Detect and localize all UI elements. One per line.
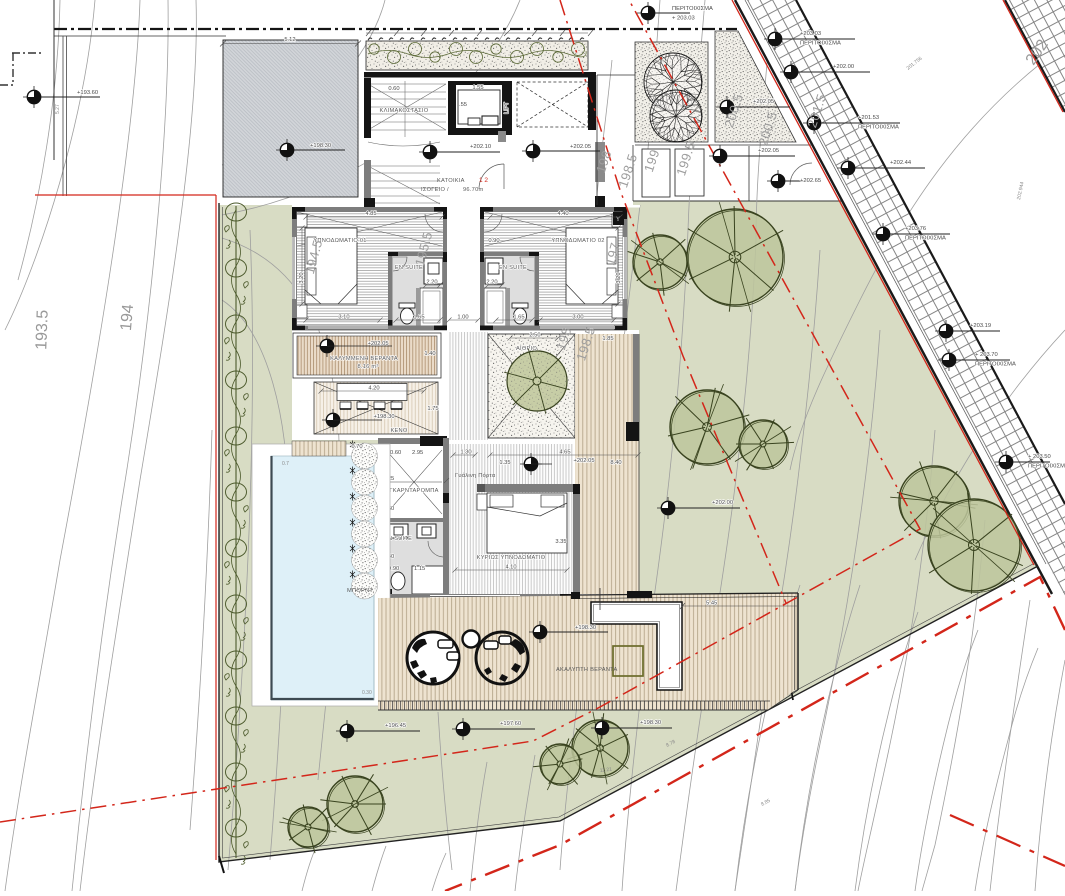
svg-text:ΚΛΙΜΑΚΟΣΤΑΣΙΟ: ΚΛΙΜΑΚΟΣΤΑΣΙΟ bbox=[380, 108, 429, 114]
svg-text:ΙΣΟΓΕΙΟ /: ΙΣΟΓΕΙΟ / bbox=[421, 187, 449, 193]
svg-text:+193.60: +193.60 bbox=[77, 90, 98, 96]
svg-text:ΑΙΘΡΙΟ: ΑΙΘΡΙΟ bbox=[516, 346, 537, 352]
svg-text:ΠΕΡΙΤΟΙΧΙΣΜΑ: ΠΕΡΙΤΟΙΧΙΣΜΑ bbox=[672, 6, 713, 12]
svg-text:ΓΚΑΡΝΤΑΡΟΜΠΑ: ΓΚΑΡΝΤΑΡΟΜΠΑ bbox=[389, 488, 438, 494]
svg-text:5.45: 5.45 bbox=[706, 601, 717, 607]
svg-text:+ 203.50: + 203.50 bbox=[1028, 454, 1051, 460]
svg-text:ΠΕΡΙΤΟΙΧΙΣΜΑ: ΠΕΡΙΤΟΙΧΙΣΜΑ bbox=[1028, 464, 1065, 470]
svg-text:2.95: 2.95 bbox=[412, 450, 423, 456]
svg-text:+197.60: +197.60 bbox=[500, 721, 521, 727]
svg-text:1.30: 1.30 bbox=[460, 450, 471, 456]
svg-text:1.35: 1.35 bbox=[499, 460, 510, 466]
svg-text:1.65: 1.65 bbox=[513, 315, 524, 321]
svg-text:+202.05: +202.05 bbox=[758, 148, 779, 154]
svg-text:3.10: 3.10 bbox=[338, 315, 349, 321]
svg-text:LIFT: LIFT bbox=[504, 102, 510, 114]
svg-text:1.40: 1.40 bbox=[424, 351, 435, 357]
svg-text:2.50: 2.50 bbox=[529, 333, 540, 339]
svg-text:ΜΠΟΡΝΤ.: ΜΠΟΡΝΤ. bbox=[347, 588, 375, 594]
svg-text:ΚΑΤΟΙΚΙΑ: ΚΑΤΟΙΚΙΑ bbox=[437, 178, 465, 184]
svg-text:4.40: 4.40 bbox=[557, 211, 568, 217]
svg-text:3.20: 3.20 bbox=[616, 272, 622, 283]
svg-text:+196.45: +196.45 bbox=[385, 723, 406, 729]
svg-text:1.65: 1.65 bbox=[413, 315, 424, 321]
svg-text:ΑΚΑΛΥΠΤΗ ΒΕΡΑΝΤΑ: ΑΚΑΛΥΠΤΗ ΒΕΡΑΝΤΑ bbox=[556, 667, 618, 673]
svg-text:1 2: 1 2 bbox=[479, 177, 488, 184]
svg-text:+198.30: +198.30 bbox=[373, 414, 394, 420]
svg-text:4.20: 4.20 bbox=[368, 386, 379, 392]
svg-text:.55: .55 bbox=[459, 102, 467, 108]
svg-text:ΚΑΛΥΜΜΕΝΗ ΒΕΡΑΝΤΑ: ΚΑΛΥΜΜΕΝΗ ΒΕΡΑΝΤΑ bbox=[330, 356, 398, 362]
svg-text:ΠΕΡΙΤΟΙΧΙΣΜΑ: ΠΕΡΙΤΟΙΧΙΣΜΑ bbox=[800, 41, 841, 47]
svg-text:2.20: 2.20 bbox=[486, 280, 497, 286]
svg-text:ΠΕΡΙΤΟΙΧΙΣΜΑ: ΠΕΡΙΤΟΙΧΙΣΜΑ bbox=[858, 125, 899, 131]
svg-text:+198.30: +198.30 bbox=[575, 625, 596, 631]
svg-text:4.10: 4.10 bbox=[505, 565, 516, 571]
svg-text:+198.30: +198.30 bbox=[640, 720, 661, 726]
svg-text:0.90: 0.90 bbox=[488, 238, 499, 244]
svg-text:194: 194 bbox=[118, 303, 137, 331]
svg-text:+203.76: +203.76 bbox=[905, 226, 926, 232]
svg-text:8.40: 8.40 bbox=[610, 460, 621, 466]
svg-text:+ 203.03: + 203.03 bbox=[672, 16, 695, 22]
svg-text:ΠΕΡΙΤΟΙΧΙΣΜΑ: ΠΕΡΙΤΟΙΧΙΣΜΑ bbox=[975, 362, 1016, 368]
svg-text:1.75: 1.75 bbox=[427, 406, 438, 412]
svg-text:1.85: 1.85 bbox=[602, 336, 613, 342]
svg-text:193.5: 193.5 bbox=[33, 309, 51, 350]
svg-text:+202.00: +202.00 bbox=[712, 500, 733, 506]
svg-text:+203.03: +203.03 bbox=[800, 31, 821, 37]
svg-text:0.7: 0.7 bbox=[282, 461, 289, 467]
svg-text:+ 203.70: + 203.70 bbox=[975, 352, 998, 358]
svg-text:ΠΕΡΙΤΟΙΧΙΣΜΑ: ΠΕΡΙΤΟΙΧΙΣΜΑ bbox=[905, 236, 946, 242]
svg-text:5.12: 5.12 bbox=[284, 37, 295, 43]
svg-text:2.20: 2.20 bbox=[426, 280, 437, 286]
svg-text:0.30: 0.30 bbox=[362, 690, 372, 696]
svg-text:+203.19: +203.19 bbox=[970, 323, 991, 329]
svg-text:3.35: 3.35 bbox=[555, 539, 566, 545]
svg-text:96.70m: 96.70m bbox=[463, 187, 483, 193]
svg-text:5.27: 5.27 bbox=[55, 104, 61, 114]
svg-text:4.65: 4.65 bbox=[559, 450, 570, 456]
svg-text:EN SUITE: EN SUITE bbox=[499, 265, 527, 271]
svg-text:ΥΠΝΟΔΩΜΑΤΙΟ 02: ΥΠΝΟΔΩΜΑΤΙΟ 02 bbox=[551, 238, 604, 244]
svg-text:+202.00: +202.00 bbox=[833, 64, 854, 70]
svg-text:1.55: 1.55 bbox=[472, 85, 483, 91]
svg-text:0.60: 0.60 bbox=[388, 86, 399, 92]
svg-text:0.60: 0.60 bbox=[390, 450, 401, 456]
svg-text:3.00: 3.00 bbox=[572, 315, 583, 321]
svg-text:+198.30: +198.30 bbox=[310, 143, 331, 149]
svg-text:ΚΕΝΟ: ΚΕΝΟ bbox=[390, 428, 407, 434]
svg-text:+202.05: +202.05 bbox=[570, 144, 591, 150]
svg-text:1.00: 1.00 bbox=[457, 315, 468, 321]
svg-text:+201.53: +201.53 bbox=[858, 115, 879, 121]
svg-text:4.85: 4.85 bbox=[365, 211, 376, 217]
svg-text:1.15: 1.15 bbox=[414, 566, 425, 572]
svg-text:+202.10: +202.10 bbox=[470, 144, 491, 150]
svg-text:+202.05: +202.05 bbox=[753, 99, 774, 105]
svg-text:ΚΥΡΙΩΣ ΥΠΝΟΔΩΜΑΤΙΟ: ΚΥΡΙΩΣ ΥΠΝΟΔΩΜΑΤΙΟ bbox=[477, 555, 546, 561]
svg-text:+202.44: +202.44 bbox=[890, 160, 912, 166]
svg-text:0.70: 0.70 bbox=[351, 444, 362, 450]
svg-text:Γυάλινη Πόρτα: Γυάλινη Πόρτα bbox=[455, 472, 496, 479]
svg-text:8.16 m²: 8.16 m² bbox=[357, 364, 378, 370]
svg-text:+202.65: +202.65 bbox=[800, 178, 821, 184]
svg-text:+202.05: +202.05 bbox=[573, 458, 594, 464]
svg-text:3.20: 3.20 bbox=[299, 272, 305, 283]
